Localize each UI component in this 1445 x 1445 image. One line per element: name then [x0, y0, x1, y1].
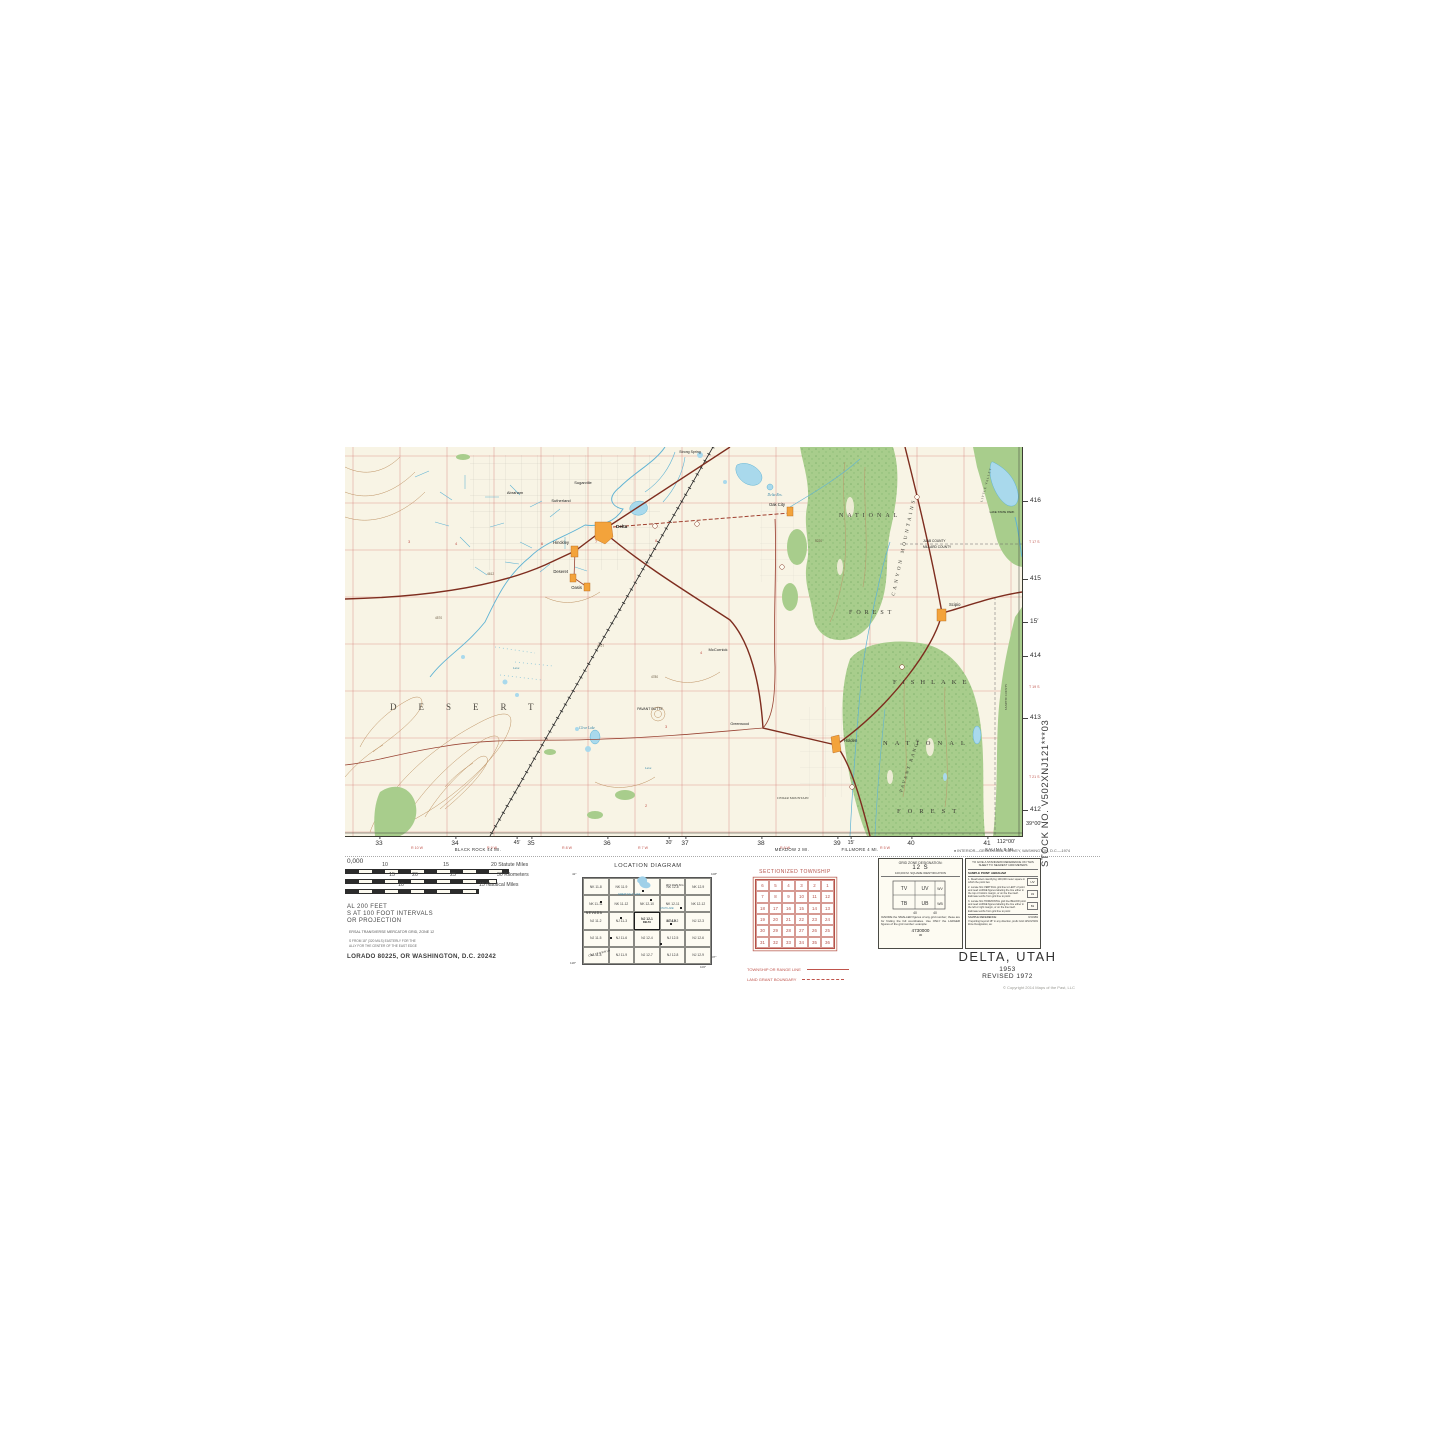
location-diagram-cell: NJ 12-4	[634, 930, 660, 947]
square-identification-diagram: TV UV WV TB UB WB 40 40	[891, 879, 951, 915]
township-section-cell: 30	[756, 925, 769, 936]
label-cedar-mountain: CEDAR MOUNTAIN	[777, 796, 809, 800]
location-diagram-cell: NK 12-10	[634, 895, 660, 912]
reference-steps-body: 1. Read letters identifying 100,000 mete…	[968, 878, 1038, 914]
township-section-cell: 35	[808, 937, 821, 948]
township-section-cell: 34	[795, 937, 808, 948]
town-scipio	[937, 609, 946, 621]
spot-elevation: 4570	[435, 616, 442, 620]
spot-elevation: 4780	[651, 675, 658, 679]
spot-elevation: 4612	[487, 572, 494, 576]
bottom-margin-range-label: R 10 W	[411, 846, 423, 850]
township-section-cell: 31	[756, 937, 769, 948]
township-section-cell: 28	[782, 925, 795, 936]
step-value-3: 81	[1027, 902, 1038, 910]
bottom-margin-tick: 36	[603, 840, 610, 847]
location-diagram-title: LOCATION DIAGRAM	[580, 863, 716, 869]
diagram-corner-tr: 108°	[711, 872, 717, 876]
location-diagram-cell: NJ 12-6	[685, 930, 711, 947]
scale-tick: 10	[398, 882, 404, 888]
label-national-upper: NATIONAL	[839, 513, 901, 519]
township-section-cell: 27	[795, 925, 808, 936]
scale-tick: 25	[450, 872, 456, 878]
bottom-margin-tick: 15′	[848, 840, 855, 846]
solid-line-sample	[807, 969, 849, 970]
sample-point-label: SAMPLE POINT: ABRAHAM	[968, 870, 1038, 877]
copyright-line: © Copyright 2014 Maps of the Past, LLC	[1003, 985, 1075, 990]
location-diagram-cell: NJ 12-8	[660, 947, 686, 964]
label-town-scipio: Scipio	[949, 602, 961, 607]
city-dot	[660, 943, 662, 945]
right-margin-tick: 416	[1030, 497, 1041, 504]
township-section-cell: 23	[808, 914, 821, 925]
right-margin-township-label: T 21 S	[1029, 775, 1040, 779]
label-town-mccornick: McCornick	[709, 647, 728, 652]
right-map-margin: 39°00′ 41641515′414413412T 17 ST 19 ST 2…	[1024, 447, 1096, 836]
town-deseret	[570, 574, 576, 582]
right-margin-tick: 415	[1030, 575, 1041, 582]
label-town-hinckley: Hinckley	[553, 540, 570, 545]
scale-bar-unit-label: 15 Nautical Miles	[479, 882, 519, 888]
scale-tick: 10	[382, 862, 388, 868]
sample-reference-value: UV3181	[1028, 916, 1038, 919]
reference-box-title: TO GIVE A STANDARD REFERENCE ON THIS SHE…	[968, 861, 1038, 870]
contour-interval-text: AL 200 FEET	[347, 904, 387, 910]
scale-tick: 15	[389, 872, 395, 878]
state-wyoming: WYOMING	[666, 883, 684, 887]
land-grant-boundary-label: LAND GRANT BOUNDARY	[747, 977, 796, 982]
label-forest-upper: FOREST	[849, 610, 895, 616]
right-margin-tick: 414	[1030, 652, 1041, 659]
utm-grid-note: ERSAL TRANSVERSE MERCATOR GRID, ZONE 12	[349, 930, 434, 934]
label-town-delta: Delta	[616, 524, 628, 529]
sheet-year: 1953	[940, 966, 1075, 973]
map-collar-legend: 0,000 10 15 20 Statute Miles 15 20 25 30…	[345, 856, 1100, 1033]
township-section-cell: 32	[769, 937, 782, 948]
svg-text:TV: TV	[900, 886, 907, 892]
township-section-cell: 36	[821, 937, 834, 948]
road-destination-label: FILLMORE 4 MI.	[841, 847, 878, 852]
label-town-oak-city: Oak City	[769, 502, 786, 507]
svg-text:TB: TB	[900, 901, 907, 907]
city-dot	[642, 890, 644, 892]
spot-elevation: 4707	[597, 644, 604, 648]
township-section-cell: 17	[769, 903, 782, 914]
city-dot	[620, 917, 622, 919]
location-diagram-cell: NK 11-12	[609, 895, 635, 912]
township-section-cell: 2	[808, 880, 821, 891]
ordering-address: LORADO 80225, OR WASHINGTON, D.C. 20242	[347, 953, 496, 960]
location-diagram-cell: NJ 11-6	[609, 930, 635, 947]
location-diagram-cell: NJ 12-9	[685, 947, 711, 964]
land-grant-boundary-legend: LAND GRANT BOUNDARY	[747, 977, 844, 982]
label-town-greenwood: Greenwood	[730, 722, 749, 726]
location-diagram-cell: NK 11-11	[583, 895, 609, 912]
step-value-1: UV	[1027, 878, 1038, 886]
bottom-margin-tick: 41	[983, 840, 990, 847]
scale-bar-unit-label: 30 Kilometers	[497, 872, 529, 878]
stock-number: STOCK NO. V502XNJ121***03	[1040, 731, 1054, 867]
diagram-corner-br2: 37°	[712, 955, 717, 959]
township-section-cell: 12	[821, 891, 834, 902]
reference-step-1: 1. Read letters identifying 100,000 mete…	[968, 878, 1026, 884]
township-section-cell: 11	[808, 891, 821, 902]
bottom-margin-tick: 40	[907, 840, 914, 847]
label-delta-res: Delta Res.	[767, 493, 783, 497]
scale-bar-nautical-miles	[345, 889, 479, 894]
state-nevada: NEVADA	[586, 911, 602, 915]
supplementary-contours-text: S AT 100 FOOT INTERVALS	[347, 911, 433, 917]
township-section-cell: 18	[756, 903, 769, 914]
svg-text:UB: UB	[921, 901, 929, 907]
bottom-margin-tick: 38	[757, 840, 764, 847]
township-section-cell: 6	[756, 880, 769, 891]
township-section-cell: 33	[782, 937, 795, 948]
bottom-margin-tick: 33	[375, 840, 382, 847]
grid-number-example-sub: 30	[881, 933, 960, 937]
sheet-name: DELTA, UTAH	[940, 949, 1075, 964]
label-national-lower: NATIONAL	[883, 740, 972, 747]
sheet-revision: REVISED 1972	[940, 973, 1075, 980]
label-lava-1: Lava	[512, 666, 520, 670]
bottom-margin-range-label: R 8 W	[562, 846, 572, 850]
reference-step-values: UV 31 81	[1027, 878, 1038, 914]
map-canvas: DESERT FISHLAKE NATIONAL FOREST NATIONAL…	[345, 447, 1022, 836]
location-diagram-cell: NJ 12-3	[685, 912, 711, 929]
svg-text:WB: WB	[937, 902, 943, 906]
step-value-2: 31	[1027, 890, 1038, 898]
township-section-cell: 25	[821, 925, 834, 936]
sectionized-township-title: SECTIONIZED TOWNSHIP	[747, 869, 843, 875]
grid-zone-designation-box: GRID ZONE DESIGNATION: 12 S 100,000 M. S…	[878, 858, 963, 949]
diagram-corner-tl: 42°	[572, 872, 577, 876]
bottom-margin-tick: 35	[527, 840, 534, 847]
label-millard-county: MILLARD COUNTY	[923, 545, 952, 549]
projection-text: OR PROJECTION	[347, 918, 402, 924]
location-diagram-cell: NJ 11-5	[583, 930, 609, 947]
scale-text-fragment: 0,000	[347, 858, 363, 865]
label-lava-2: Lava	[644, 766, 652, 770]
township-section-cell: 29	[769, 925, 782, 936]
beyond-value: 12SUV3181	[1025, 920, 1038, 926]
label-town-sugarville: Sugarville	[574, 480, 592, 485]
location-diagram-cell: NJ 12-7	[634, 947, 660, 964]
bottom-margin-tick: 39	[833, 840, 840, 847]
location-diagram-cell: NJ 11-9	[609, 947, 635, 964]
scale-tick: 20	[412, 872, 418, 878]
svg-text:WV: WV	[937, 887, 943, 891]
label-sanpete-county: SANPETE COUNTY	[1004, 683, 1008, 710]
road-destination-label: MEADOW 2 MI.	[775, 847, 810, 852]
sheet-title-block: DELTA, UTAH 1953 REVISED 1972	[940, 949, 1075, 980]
township-range-line-label: TOWNSHIP OR RANGE LINE	[747, 967, 801, 972]
svg-text:UV: UV	[921, 886, 929, 892]
bottom-margin-tick: 34	[451, 840, 458, 847]
township-section-cell: 1	[821, 880, 834, 891]
label-juab-county: JUAB COUNTY	[923, 539, 946, 543]
township-section-cell: 14	[808, 903, 821, 914]
township-section-cell: 5	[769, 880, 782, 891]
road-destination-label: SALINA 8 MI.	[985, 847, 1015, 852]
town-holden	[831, 735, 841, 753]
city-dot	[600, 901, 602, 903]
label-desert: DESERT	[390, 702, 555, 712]
township-section-cell: 19	[756, 914, 769, 925]
location-diagram-cell: NJ 12-5	[660, 930, 686, 947]
label-town-abraham: Abraham	[507, 490, 524, 495]
township-section-cell: 13	[821, 903, 834, 914]
standard-reference-box: TO GIVE A STANDARD REFERENCE ON THIS SHE…	[965, 858, 1041, 949]
township-section-cell: 8	[769, 891, 782, 902]
declination-note-1: S FROM 18° (320 MILS) EASTERLY FOR THE	[349, 939, 416, 943]
right-margin-township-label: T 17 S	[1029, 540, 1040, 544]
topographic-map: DESERT FISHLAKE NATIONAL FOREST NATIONAL…	[345, 447, 1023, 837]
scanned-map-page: DESERT FISHLAKE NATIONAL FOREST NATIONAL…	[0, 0, 1445, 1445]
bottom-margin-tick: 45′	[514, 840, 521, 846]
location-diagram: LOCATION DIAGRAM NK 11-8NK 11-9NK 12-8NK…	[580, 863, 716, 979]
declination-note-2: ALLY FOR THE CENTER OF THE EAST EDGE	[349, 944, 417, 948]
location-diagram-cell: NK 12-12	[685, 895, 711, 912]
sectionized-township-grid: 6543217891011121817161514131920212223243…	[755, 879, 835, 949]
reference-step-3: 3. Locate first HORIZONTAL grid line BEL…	[968, 900, 1026, 913]
scale-bar-unit-label: 20 Statute Miles	[491, 862, 528, 868]
bottom-map-margin: 112°00′ ● INTERIOR—GEOLOGICAL SURVEY, WA…	[345, 836, 1100, 856]
label-town-oasis: Oasis	[571, 585, 582, 590]
road-destination-label: BLACK ROCK 44 MI.	[455, 847, 502, 852]
label-forest-lower: FOREST	[897, 808, 963, 815]
township-section-cell: 3	[795, 880, 808, 891]
city-dot	[680, 907, 682, 909]
city-dot	[650, 899, 652, 901]
sample-reference-label: SAMPLE REFERENCE:	[968, 916, 997, 919]
square-identification-subtitle: 100,000 M. SQUARE IDENTIFICATION	[881, 871, 960, 877]
township-section-cell: 26	[808, 925, 821, 936]
beyond-note-row: If reporting beyond 18° in any direction…	[968, 920, 1038, 926]
scale-bar-statute-miles	[345, 869, 509, 874]
township-section-cell: 10	[795, 891, 808, 902]
spot-elevation: 5220	[815, 539, 822, 543]
bottom-margin-range-label: R 5 W	[880, 846, 890, 850]
label-pavant-butte: PAVANT BUTTE	[637, 707, 663, 711]
sectionized-township: SECTIONIZED TOWNSHIP 6543217891011121817…	[747, 869, 843, 949]
township-section-cell: 9	[782, 891, 795, 902]
utah-lake-label: UTAH LAKE	[660, 907, 674, 910]
agency-credit-line: ● INTERIOR—GEOLOGICAL SURVEY, WASHINGTON…	[845, 849, 1070, 853]
township-section-cell: 20	[769, 914, 782, 925]
township-range-line-legend: TOWNSHIP OR RANGE LINE	[747, 967, 849, 972]
label-town-sutherland: Sutherland	[551, 498, 570, 503]
township-section-cell: 15	[795, 903, 808, 914]
label-lake-state-park: LAKE STATE PARK	[990, 510, 1015, 514]
location-diagram-cell: NK 12-9	[685, 878, 711, 895]
bottom-margin-tick: 37	[681, 840, 688, 847]
right-margin-tick: 15′	[1030, 618, 1038, 625]
reference-step-2: 2. Locate first VERTICAL grid line to LE…	[968, 886, 1026, 899]
corner-longitude: 112°00′	[997, 839, 1015, 845]
great-salt-lake-label: GREAT SALT LAKE	[618, 893, 640, 896]
township-section-cell: 16	[782, 903, 795, 914]
label-town-deseret: Deseret	[553, 569, 568, 574]
township-section-cell: 22	[795, 914, 808, 925]
label-fishlake: FISHLAKE	[893, 679, 972, 686]
town-oak-city	[787, 507, 793, 516]
location-diagram-cell: NJ 12-1DELTA	[634, 912, 660, 929]
township-section-cell: 21	[782, 914, 795, 925]
scale-tick: 15	[443, 862, 449, 868]
bottom-margin-range-label: R 7 W	[638, 846, 648, 850]
sample-reference-row: SAMPLE REFERENCE: UV3181	[968, 914, 1038, 919]
township-section-cell: 4	[782, 880, 795, 891]
label-strong-spring: Strong Spring	[679, 450, 700, 454]
town-hinckley	[571, 546, 578, 557]
grid-number-note: IGNORE the SMALLER figures of any grid n…	[881, 916, 960, 927]
beyond-note: If reporting beyond 18° in any direction…	[968, 920, 1025, 926]
reference-steps: 1. Read letters identifying 100,000 mete…	[968, 878, 1026, 914]
town-oasis	[584, 583, 590, 591]
location-diagram-cell: NK 11-8	[583, 878, 609, 895]
bottom-margin-tick: 30′	[666, 840, 673, 846]
diagram-corner-br: 106°	[700, 965, 706, 969]
label-clear-lake: Clear Lake	[579, 726, 595, 730]
city-dot	[610, 937, 612, 939]
scale-bar-kilometers	[345, 879, 497, 884]
township-section-cell: 7	[756, 891, 769, 902]
right-margin-township-label: T 19 S	[1029, 685, 1040, 689]
dashed-line-sample	[802, 979, 844, 980]
location-diagram-cell: NJ 11-3	[609, 912, 635, 929]
label-town-holden: Holden	[844, 738, 858, 743]
township-section-cell: 24	[821, 914, 834, 925]
city-dot	[670, 923, 672, 925]
diagram-corner-bl: 118°	[570, 961, 576, 965]
